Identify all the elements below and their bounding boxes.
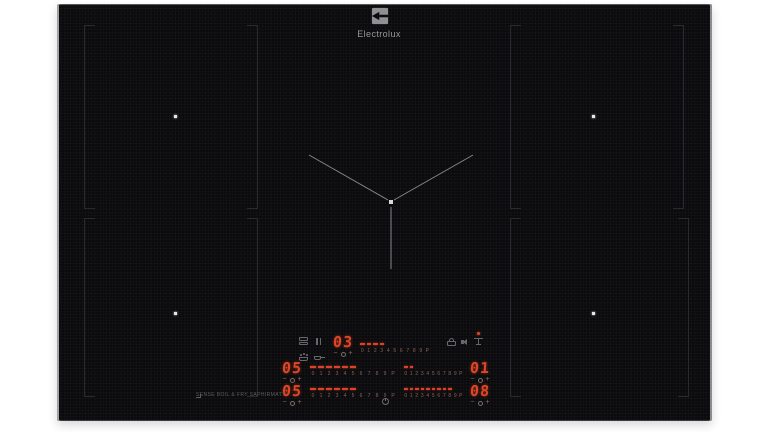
slider-tick-label: 6	[437, 372, 440, 377]
power-value-right-top: 01	[469, 361, 490, 376]
slider-step-6[interactable]: 6	[357, 388, 365, 399]
slider-step-8[interactable]: 8	[373, 366, 381, 377]
slider-segment	[342, 388, 348, 390]
minus-button[interactable]: −	[470, 400, 474, 406]
slider-tick-label: 4	[344, 372, 347, 377]
slider-segment	[326, 366, 332, 368]
slider-segment	[404, 366, 408, 368]
cooking-zone-right-bottom-frame	[510, 218, 689, 397]
slider-segment	[318, 366, 324, 368]
slider-tick-label: 7	[443, 394, 446, 399]
sense-fry-button[interactable]	[314, 353, 325, 361]
slider-tick-label: 3	[421, 394, 424, 399]
slider-tick-label: 5	[393, 349, 396, 354]
slider-tick-label: 8	[413, 349, 416, 354]
slider-tick-label: 7	[443, 372, 446, 377]
slider-tick-label: P	[459, 394, 462, 399]
zone-dot-left-top	[174, 115, 177, 118]
slider-segment	[310, 366, 316, 368]
power-display-center: 03 − +	[328, 335, 358, 357]
slider-step-0[interactable]: 0	[309, 366, 317, 377]
hood-indicator-dot	[477, 332, 480, 335]
slider-segment	[380, 343, 385, 345]
lock-button[interactable]	[447, 338, 456, 347]
power-slider-left-top[interactable]: 0123456789P	[309, 366, 397, 377]
slider-tick-label: 5	[432, 394, 435, 399]
slider-segment	[367, 343, 372, 345]
slider-tick-label: 7	[368, 394, 371, 399]
slider-step-5[interactable]: 5	[349, 388, 357, 399]
slider-tick-label: 9	[454, 394, 457, 399]
slider-tick-label: 0	[404, 372, 407, 377]
slider-segment	[334, 388, 340, 390]
slider-tick-label: 6	[360, 372, 363, 377]
cooking-zone-left-top-frame	[84, 25, 258, 209]
slider-step-3[interactable]: 3	[333, 366, 341, 377]
slider-step-3[interactable]: 3	[333, 388, 341, 399]
plus-button[interactable]: +	[349, 351, 353, 357]
slider-tick-label: P	[391, 394, 394, 399]
slider-tick-label: 8	[448, 372, 451, 377]
pause-button[interactable]	[316, 338, 321, 345]
model-label-text: SENSE BOIL & FRY SAPHIRMATT	[196, 392, 286, 398]
power-button[interactable]	[382, 398, 389, 405]
plus-button[interactable]: +	[298, 400, 302, 406]
slider-tick-label: 4	[426, 394, 429, 399]
slider-step-2[interactable]: 2	[325, 366, 333, 377]
slider-segment	[415, 388, 419, 390]
slider-step-5[interactable]: 5	[349, 366, 357, 377]
slider-segment	[350, 388, 356, 390]
power-value-right-bottom: 08	[469, 384, 490, 399]
slider-segment	[360, 343, 365, 345]
power-value-center: 03	[332, 335, 353, 350]
slider-step-P[interactable]: P	[389, 366, 397, 377]
power-display-left-top: 05 − +	[277, 361, 307, 383]
minus-button[interactable]: −	[333, 351, 337, 357]
slider-tick-label: 2	[415, 372, 418, 377]
slider-segment	[326, 388, 332, 390]
slider-segment	[432, 388, 436, 390]
slider-tick-label: 0	[404, 394, 407, 399]
slider-step-8[interactable]: 8	[373, 388, 381, 399]
slider-step-P[interactable]: P	[389, 388, 397, 399]
brand-name: Electrolux	[339, 29, 419, 39]
slider-step-P[interactable]: P	[458, 366, 464, 377]
slider-tick-label: 1	[320, 372, 323, 377]
slider-segment	[410, 388, 414, 390]
slider-tick-label: 6	[400, 349, 403, 354]
cooking-zone-right-top-frame	[510, 25, 684, 209]
slider-tick-label: 0	[312, 372, 315, 377]
slider-tick-label: 1	[367, 349, 370, 354]
slider-segment	[410, 366, 414, 368]
slider-step-6[interactable]: 6	[357, 366, 365, 377]
zone-dot-left-bottom	[174, 312, 177, 315]
slider-tick-label: 2	[415, 394, 418, 399]
slider-tick-label: P	[391, 372, 394, 377]
slider-segment	[318, 388, 324, 390]
slider-step-1[interactable]: 1	[317, 388, 325, 399]
slider-segment	[448, 388, 452, 390]
slider-tick-label: 6	[360, 394, 363, 399]
slider-step-7[interactable]: 7	[365, 366, 373, 377]
plus-button[interactable]: +	[486, 400, 490, 406]
sound-button[interactable]	[461, 339, 467, 345]
slider-segment	[342, 366, 348, 368]
slider-segment	[350, 366, 356, 368]
slider-tick-label: 8	[376, 394, 379, 399]
slider-tick-label: P	[426, 349, 429, 354]
slider-segment	[426, 388, 430, 390]
slider-tick-label: 5	[352, 394, 355, 399]
slider-step-4[interactable]: 4	[341, 388, 349, 399]
slider-step-P[interactable]: P	[458, 388, 464, 399]
power-slider-right-bottom[interactable]: 0123456789P	[403, 388, 464, 399]
slider-tick-label: 2	[328, 394, 331, 399]
slider-step-2[interactable]: 2	[325, 388, 333, 399]
electrolux-logo-icon	[371, 7, 389, 25]
timer-button[interactable]	[478, 401, 483, 406]
slider-tick-label: 1	[320, 394, 323, 399]
slider-segment	[310, 388, 316, 390]
slider-tick-label: 1	[410, 394, 413, 399]
slider-tick-label: 0	[312, 394, 315, 399]
slider-tick-label: 4	[344, 394, 347, 399]
bridge-zone-button[interactable]	[299, 337, 308, 345]
slider-tick-label: 5	[352, 372, 355, 377]
slider-tick-label: 7	[406, 349, 409, 354]
slider-tick-label: 0	[361, 349, 364, 354]
slider-tick-label: 4	[387, 349, 390, 354]
induction-hob-surface: Electrolux 03	[57, 4, 712, 421]
zone-dot-right-top	[592, 115, 595, 118]
minus-button[interactable]: −	[282, 400, 286, 406]
slider-tick-label: 9	[454, 372, 457, 377]
hob2hood-button[interactable]	[474, 338, 483, 346]
slider-segment	[443, 388, 447, 390]
slider-segment	[421, 388, 425, 390]
flex-zone-marking	[302, 148, 482, 278]
timer-button[interactable]	[290, 401, 295, 406]
slider-tick-label: 3	[336, 394, 339, 399]
power-display-right-bottom: 08 − +	[465, 384, 495, 406]
slider-tick-label: P	[459, 372, 462, 377]
slider-tick-label: 6	[437, 394, 440, 399]
slider-segment	[334, 366, 340, 368]
zone-dot-right-bottom	[592, 312, 595, 315]
slider-tick-label: 8	[376, 372, 379, 377]
power-slider-center[interactable]: 0123456789P	[359, 343, 431, 354]
power-value-left-top: 05	[281, 361, 302, 376]
slider-segment	[437, 388, 441, 390]
slider-tick-label: 9	[384, 372, 387, 377]
slider-step-0[interactable]: 0	[309, 388, 317, 399]
cooking-zone-left-bottom-frame	[84, 218, 258, 397]
product-photo: Electrolux 03	[0, 0, 768, 432]
power-display-right-top: 01 − +	[465, 361, 495, 383]
slider-step-P[interactable]: P	[424, 343, 431, 354]
slider-tick-label: 1	[410, 372, 413, 377]
power-slider-right-top[interactable]: 0123456789P	[403, 366, 464, 377]
slider-tick-label: 9	[419, 349, 422, 354]
slider-tick-label: 3	[421, 372, 424, 377]
slider-tick-label: 8	[448, 394, 451, 399]
slider-tick-label: 3	[380, 349, 383, 354]
timer-button[interactable]	[341, 352, 346, 357]
model-label: SENSE BOIL & FRY SAPHIRMATT	[196, 394, 201, 398]
slider-tick-label: 2	[374, 349, 377, 354]
slider-tick-label: 7	[368, 372, 371, 377]
slider-segment	[373, 343, 378, 345]
slider-step-7[interactable]: 7	[365, 388, 373, 399]
slider-segment	[404, 388, 408, 390]
slider-step-9[interactable]: 9	[381, 366, 389, 377]
slider-step-4[interactable]: 4	[341, 366, 349, 377]
slider-step-1[interactable]: 1	[317, 366, 325, 377]
slider-tick-label: 4	[426, 372, 429, 377]
slider-tick-label: 3	[336, 372, 339, 377]
slider-tick-label: 5	[432, 372, 435, 377]
slider-tick-label: 2	[328, 372, 331, 377]
